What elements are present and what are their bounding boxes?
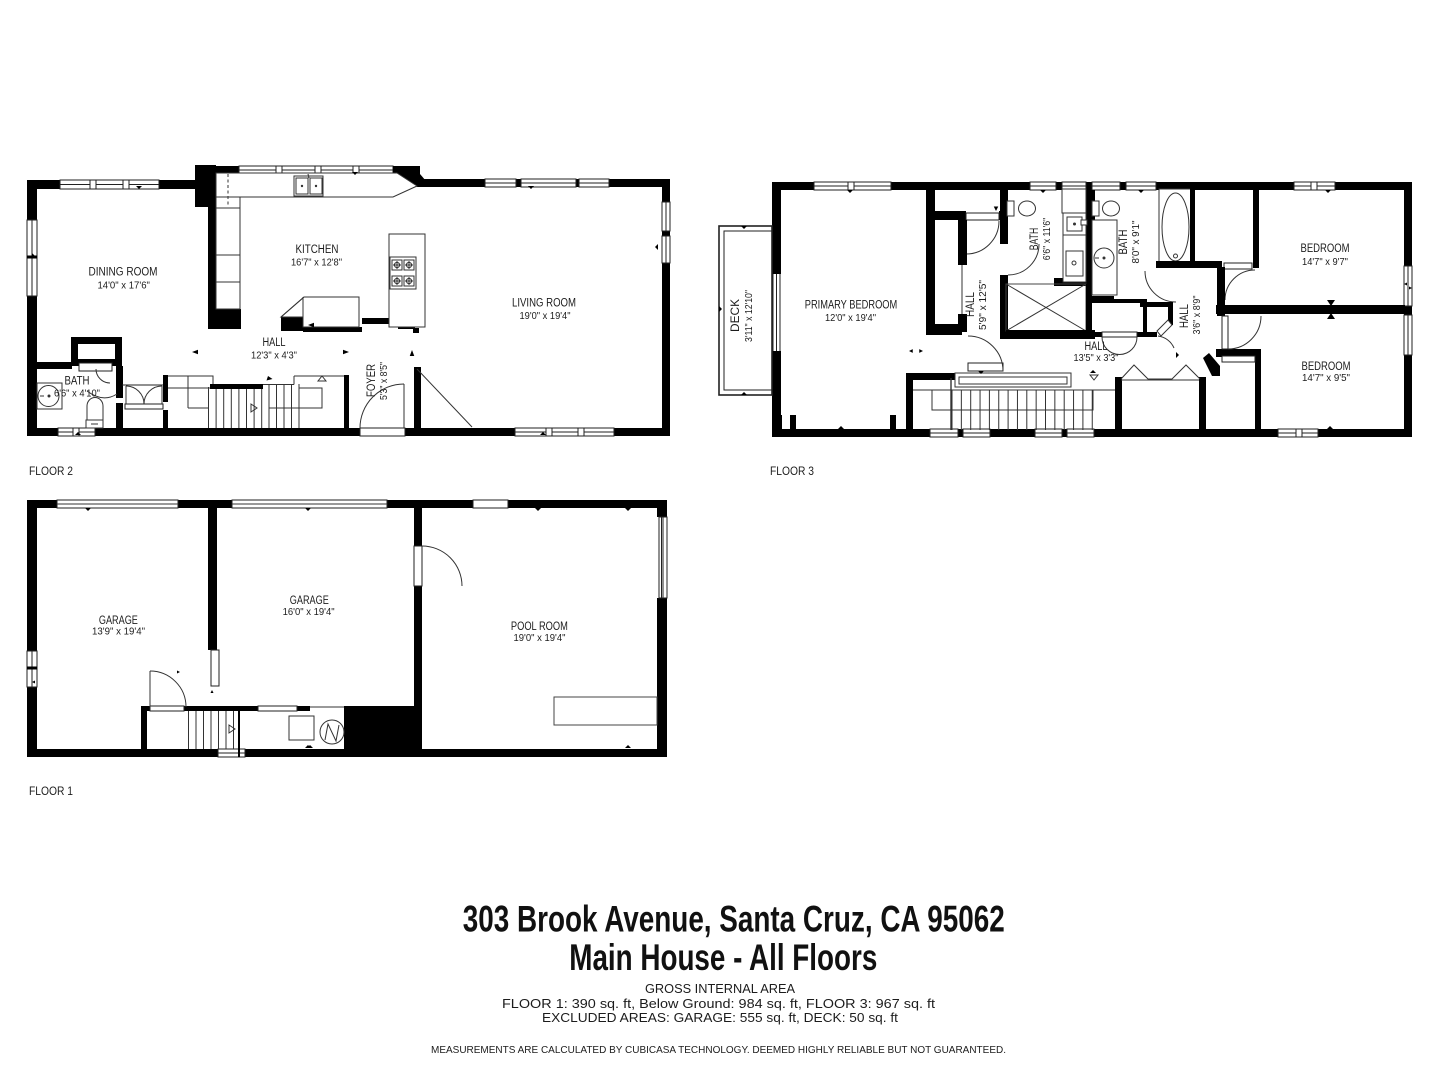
svg-text:DINING ROOM: DINING ROOM [89, 267, 158, 279]
svg-text:HALL: HALL [1179, 304, 1191, 328]
svg-text:FOYER: FOYER [366, 364, 378, 397]
svg-text:Main House - All Floors: Main House - All Floors [569, 936, 877, 978]
svg-text:BATH: BATH [1118, 230, 1130, 255]
svg-text:14'7" x 9'5": 14'7" x 9'5" [1302, 372, 1350, 384]
svg-text:LIVING ROOM: LIVING ROOM [512, 298, 576, 310]
svg-text:FLOOR 1: 390 sq. ft, Below Gro: FLOOR 1: 390 sq. ft, Below Ground: 984 s… [502, 996, 935, 1011]
svg-text:12'3" x 4'3": 12'3" x 4'3" [251, 350, 297, 362]
svg-text:303 Brook Avenue, Santa Cruz,: 303 Brook Avenue, Santa Cruz, CA 95062 [463, 898, 1005, 940]
svg-text:8'0" x 9'1": 8'0" x 9'1" [1130, 220, 1142, 263]
svg-text:BATH: BATH [65, 376, 90, 388]
svg-text:FLOOR 3: FLOOR 3 [770, 466, 814, 478]
svg-text:16'0" x 19'4": 16'0" x 19'4" [283, 606, 335, 618]
svg-text:16'7" x 12'8": 16'7" x 12'8" [291, 257, 342, 269]
svg-text:14'7" x 9'7": 14'7" x 9'7" [1302, 256, 1348, 268]
svg-text:PRIMARY BEDROOM: PRIMARY BEDROOM [805, 300, 898, 312]
svg-text:6'6" x 4'10": 6'6" x 4'10" [54, 388, 100, 400]
svg-text:KITCHEN: KITCHEN [296, 244, 339, 256]
svg-text:5'9" x 12'5": 5'9" x 12'5" [977, 280, 989, 330]
svg-text:MEASUREMENTS ARE CALCULATED BY: MEASUREMENTS ARE CALCULATED BY CUBICASA … [431, 1044, 1006, 1056]
svg-text:13'5" x 3'3": 13'5" x 3'3" [1074, 352, 1119, 364]
svg-text:DECK: DECK [730, 299, 742, 332]
svg-text:3'11" x 12'10": 3'11" x 12'10" [743, 290, 755, 342]
svg-text:14'0" x 17'6": 14'0" x 17'6" [97, 280, 150, 292]
svg-text:HALL: HALL [263, 337, 286, 349]
svg-text:5'3" x 8'5": 5'3" x 8'5" [378, 362, 390, 400]
svg-text:3'6" x 8'9": 3'6" x 8'9" [1191, 295, 1203, 334]
svg-text:FLOOR 1: FLOOR 1 [29, 786, 73, 798]
svg-text:EXCLUDED AREAS: GARAGE: 555 sq: EXCLUDED AREAS: GARAGE: 555 sq. ft, DECK… [542, 1010, 898, 1025]
svg-text:19'0" x 19'4": 19'0" x 19'4" [520, 310, 571, 322]
svg-text:12'0" x 19'4": 12'0" x 19'4" [825, 312, 876, 324]
svg-text:BATH: BATH [1029, 228, 1041, 251]
svg-text:GROSS INTERNAL AREA: GROSS INTERNAL AREA [645, 981, 795, 996]
svg-text:BEDROOM: BEDROOM [1301, 243, 1350, 255]
svg-text:HALL: HALL [965, 291, 977, 317]
svg-text:6'6" x 11'6": 6'6" x 11'6" [1041, 218, 1053, 261]
svg-text:FLOOR 2: FLOOR 2 [29, 466, 73, 478]
svg-text:19'0" x 19'4": 19'0" x 19'4" [514, 632, 566, 644]
svg-text:13'9" x 19'4": 13'9" x 19'4" [92, 626, 145, 638]
